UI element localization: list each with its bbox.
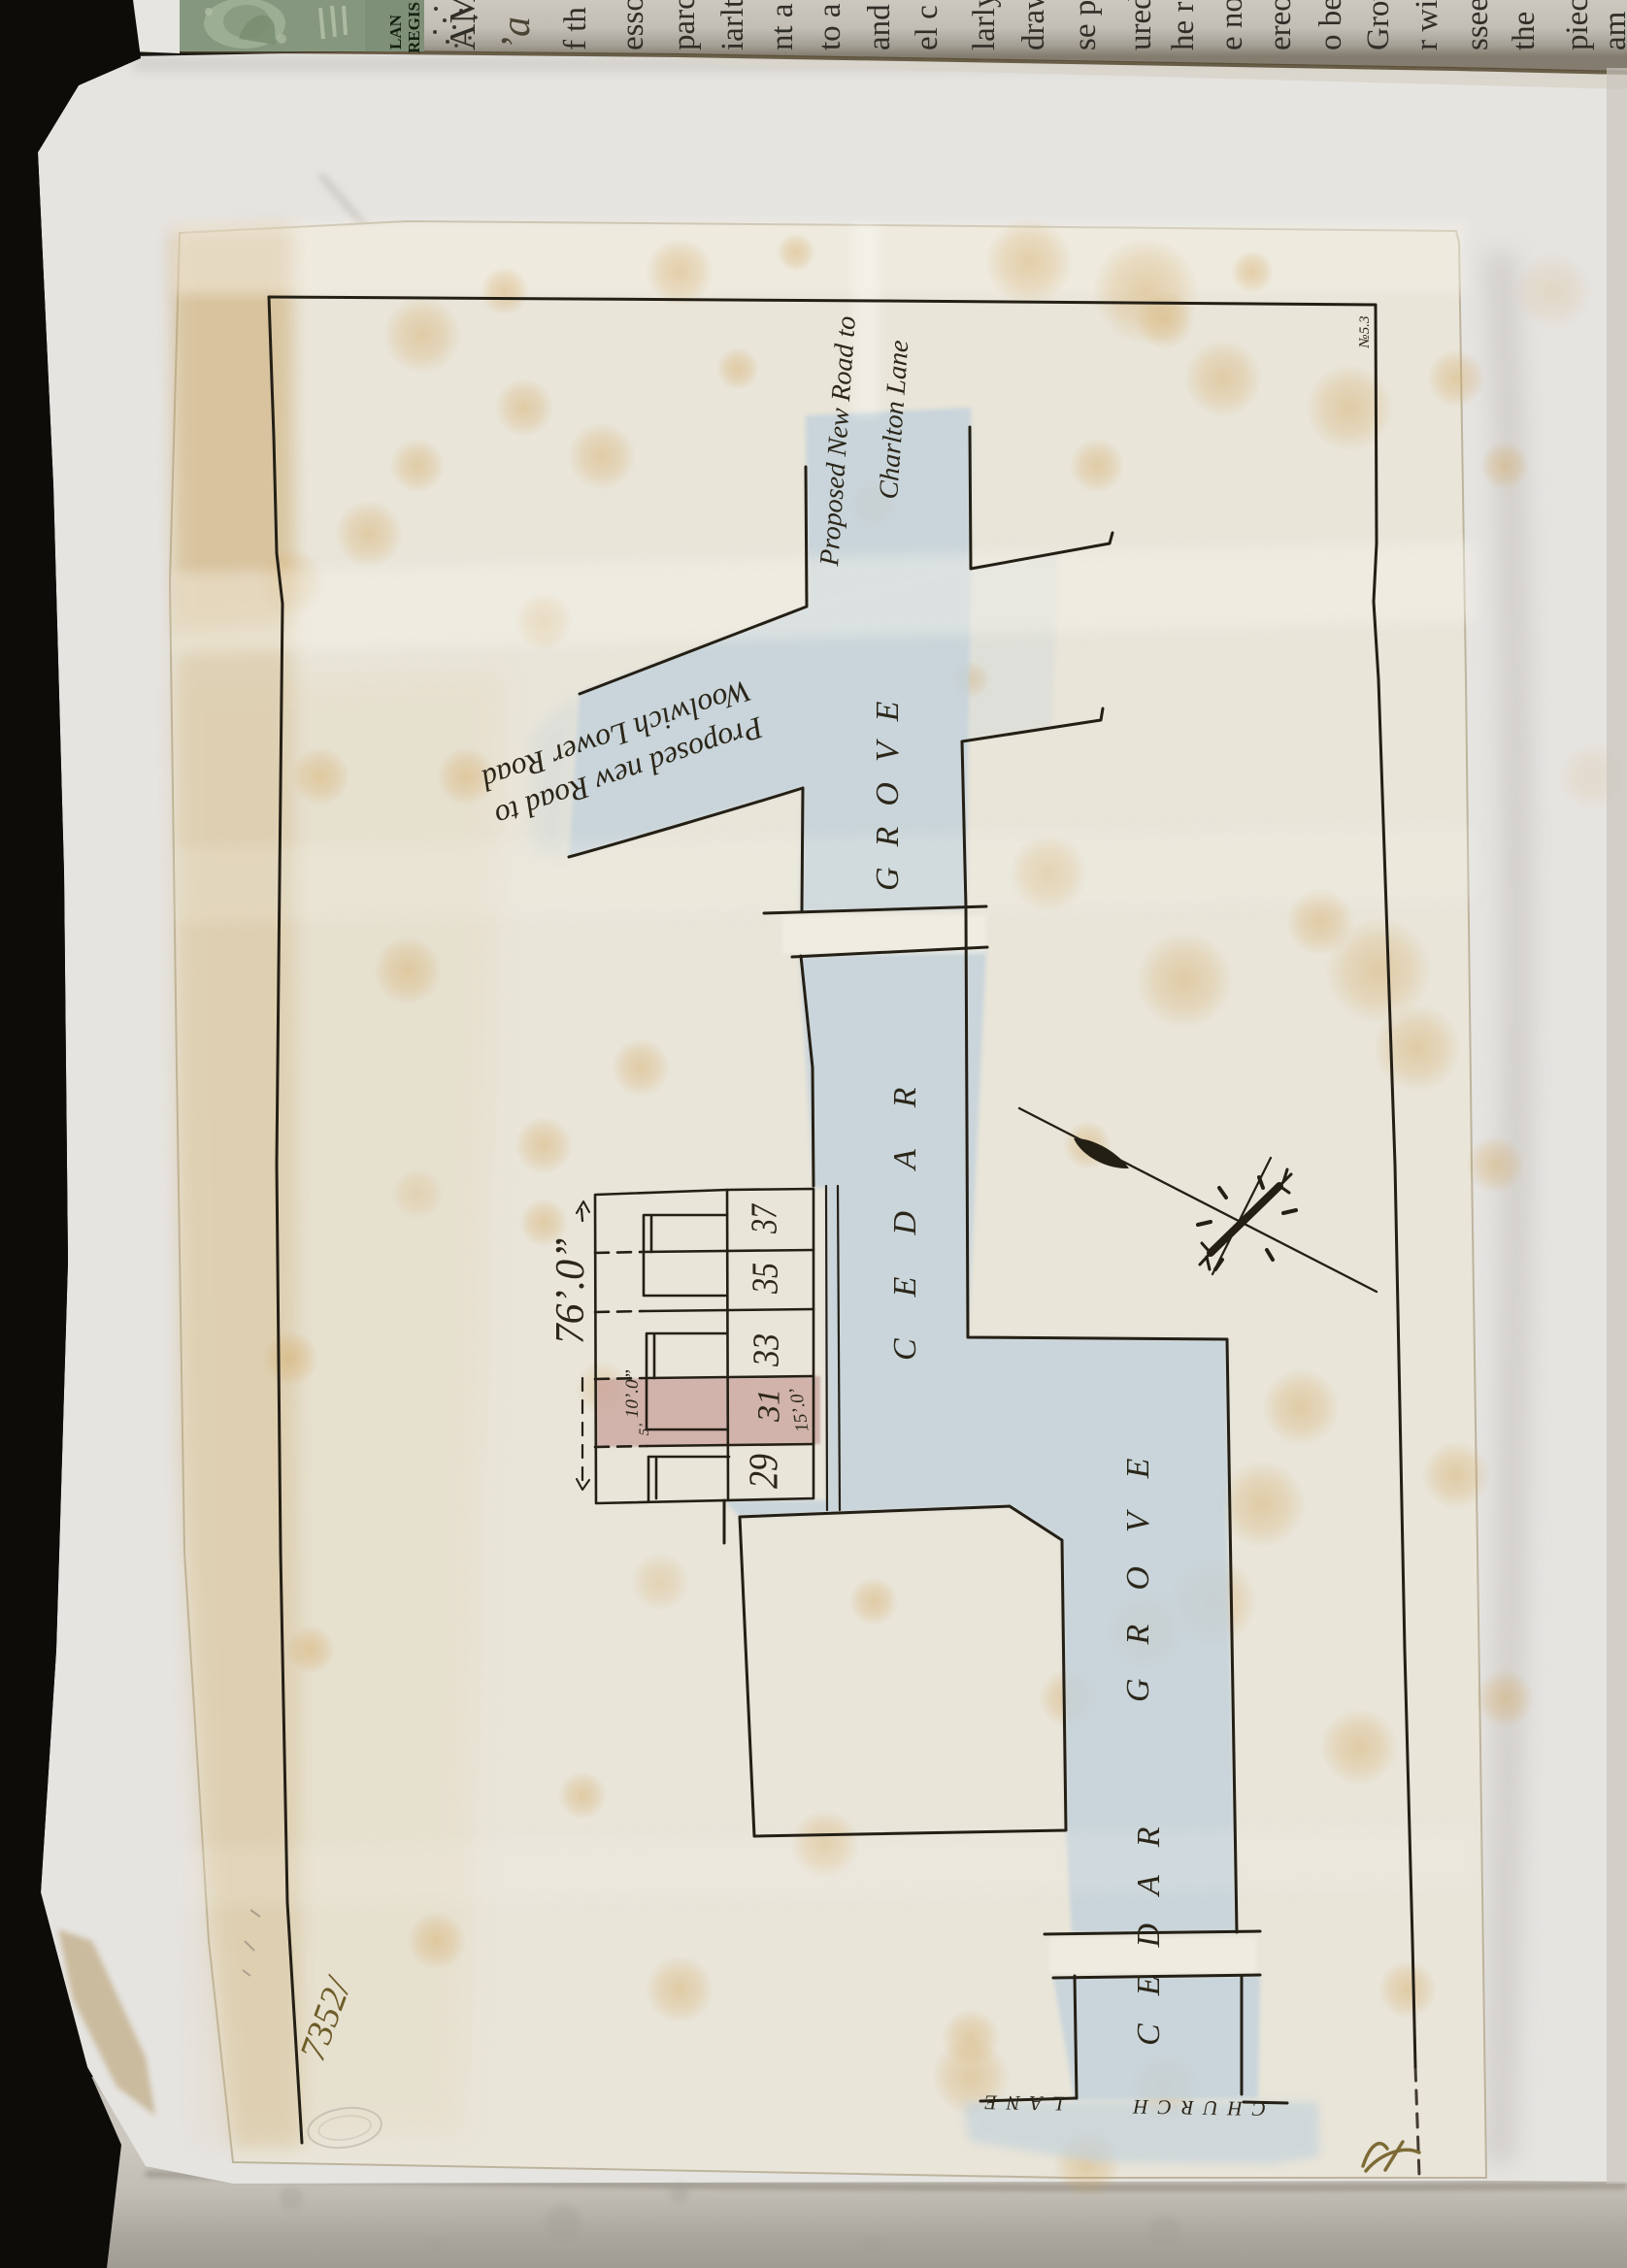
svg-text:r wit: r wit (1410, 0, 1444, 50)
svg-text:he r: he r (1166, 2, 1201, 50)
svg-text:29: 29 (743, 1454, 787, 1489)
svg-text:35: 35 (746, 1263, 786, 1295)
svg-text:№5.3: №5.3 (1357, 316, 1373, 349)
svg-text:and: and (862, 4, 897, 50)
svg-text:5’: 5’ (637, 1424, 652, 1436)
svg-text:CEDAR: CEDAR (887, 1045, 923, 1361)
svg-text:10’.0”: 10’.0” (622, 1369, 643, 1418)
svg-text:parc: parc (667, 0, 702, 50)
svg-text:GROVE: GROVE (1120, 1425, 1156, 1702)
svg-text:GROVE: GROVE (870, 681, 906, 891)
svg-text:iarlt: iarlt (715, 0, 750, 50)
svg-text:nt a: nt a (765, 3, 800, 50)
svg-text:CEDAR: CEDAR (1131, 1798, 1167, 2046)
svg-text:to a: to a (813, 3, 847, 50)
svg-text:larly: larly (967, 0, 1002, 50)
svg-text:Grove: Grove (1361, 0, 1396, 50)
svg-text:f th: f th (558, 7, 593, 50)
svg-text:ssee: ssee (1460, 0, 1495, 50)
svg-text:esso: esso (615, 0, 650, 50)
svg-text:el c: el c (910, 5, 945, 50)
svg-text:the: the (1507, 12, 1542, 50)
svg-text:am: am (1598, 11, 1627, 50)
svg-text:37: 37 (745, 1202, 785, 1233)
svg-text:LAN: LAN (386, 14, 405, 49)
svg-text:REGIS: REGIS (405, 2, 423, 53)
svg-text:AMI: AMI (443, 0, 483, 50)
svg-text:33: 33 (747, 1333, 787, 1367)
svg-text:ereon: ereon (1263, 0, 1298, 50)
svg-text:o be: o be (1313, 0, 1348, 50)
svg-text:ured: ured (1123, 0, 1158, 50)
svg-text:draw: draw (1016, 0, 1051, 50)
svg-text:’a: ’a (494, 16, 539, 50)
svg-text:76’.0”: 76’.0” (548, 1237, 593, 1345)
svg-text:piec: piec (1560, 0, 1595, 50)
svg-text:se p: se p (1068, 0, 1103, 50)
svg-text:e no: e no (1214, 0, 1249, 50)
svg-text:LANE: LANE (975, 2090, 1065, 2116)
svg-text:31: 31 (752, 1389, 787, 1423)
svg-text:CHURCH: CHURCH (1124, 2095, 1267, 2121)
